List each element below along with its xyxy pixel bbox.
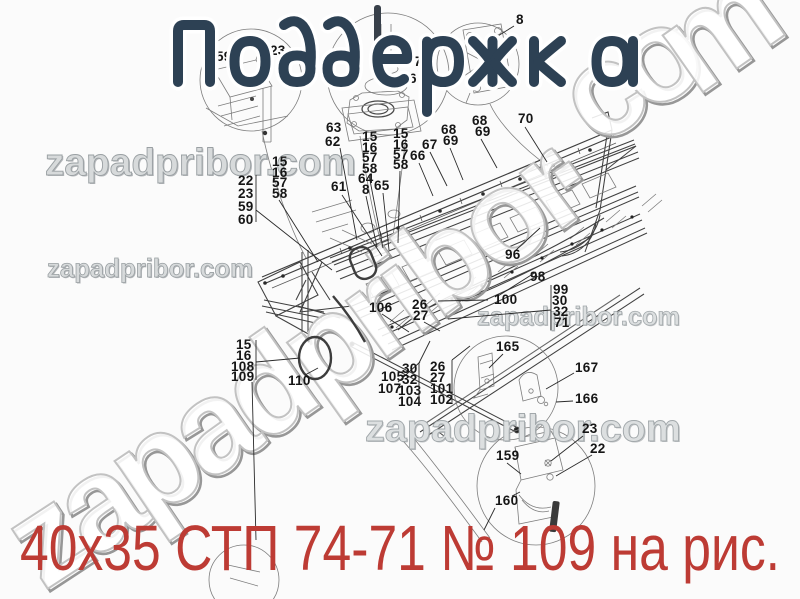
svg-text:106: 106 xyxy=(369,300,393,315)
svg-text:100: 100 xyxy=(494,292,517,307)
svg-text:zapadpribor.com: zapadpribor.com xyxy=(365,408,681,450)
svg-text:69: 69 xyxy=(475,124,491,139)
svg-text:110: 110 xyxy=(288,373,311,388)
svg-text:40х35 СТП 74-71 № 109 на рис.: 40х35 СТП 74-71 № 109 на рис. xyxy=(20,512,780,584)
svg-text:71: 71 xyxy=(554,315,570,330)
svg-text:63: 63 xyxy=(326,120,342,135)
svg-text:104: 104 xyxy=(398,394,422,409)
svg-text:zapadpribor.com: zapadpribor.com xyxy=(47,253,253,283)
svg-text:69: 69 xyxy=(443,133,459,148)
svg-text:70: 70 xyxy=(518,111,534,126)
svg-text:8: 8 xyxy=(362,182,370,197)
svg-text:60: 60 xyxy=(238,212,254,227)
svg-text:61: 61 xyxy=(331,179,347,194)
svg-text:22: 22 xyxy=(590,441,606,456)
svg-text:160: 160 xyxy=(495,493,518,508)
svg-text:62: 62 xyxy=(325,134,341,149)
svg-text:109: 109 xyxy=(231,369,254,384)
svg-text:98: 98 xyxy=(530,269,546,284)
svg-text:8: 8 xyxy=(516,12,524,27)
svg-text:102: 102 xyxy=(430,392,453,407)
svg-text:58: 58 xyxy=(272,186,288,201)
svg-text:166: 166 xyxy=(575,391,599,406)
svg-text:165: 165 xyxy=(496,339,520,354)
svg-text:58: 58 xyxy=(393,157,409,172)
svg-text:167: 167 xyxy=(575,360,598,375)
svg-text:27: 27 xyxy=(413,308,429,323)
svg-text:23: 23 xyxy=(582,421,598,436)
svg-text:66: 66 xyxy=(410,148,426,163)
svg-text:96: 96 xyxy=(505,247,521,262)
svg-text:159: 159 xyxy=(496,448,519,463)
svg-text:65: 65 xyxy=(374,178,390,193)
svg-text:zapadpribor.com: zapadpribor.com xyxy=(45,142,356,184)
